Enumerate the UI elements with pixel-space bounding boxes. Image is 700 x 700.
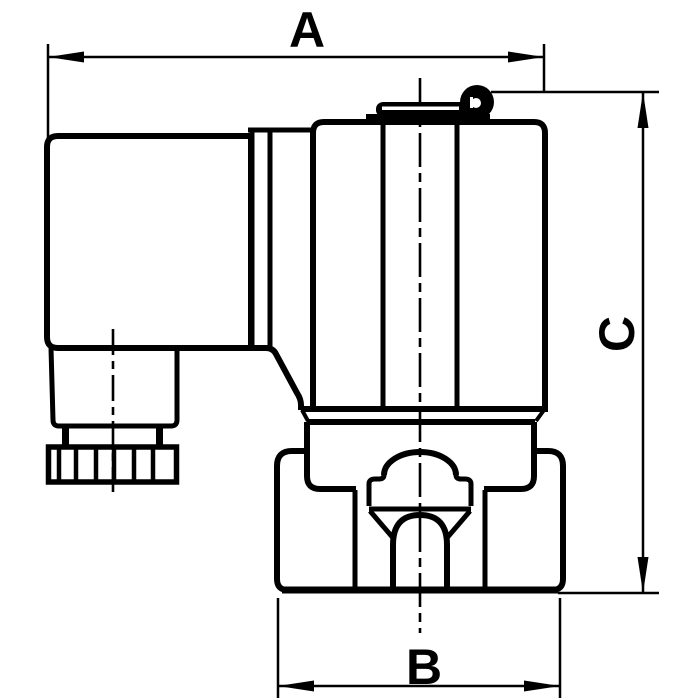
gland-neck-left	[62, 426, 69, 447]
clip-bar-slot	[382, 107, 459, 111]
dim-b-label: B	[406, 639, 442, 695]
dim-a-label: A	[289, 2, 325, 58]
drawing-canvas: A B C	[0, 0, 700, 700]
gland-neck-right	[156, 426, 163, 447]
dim-c-label: C	[589, 316, 645, 352]
clip-ring-notch	[470, 97, 473, 108]
solenoid-valve-technical-drawing: A B C	[0, 0, 700, 700]
